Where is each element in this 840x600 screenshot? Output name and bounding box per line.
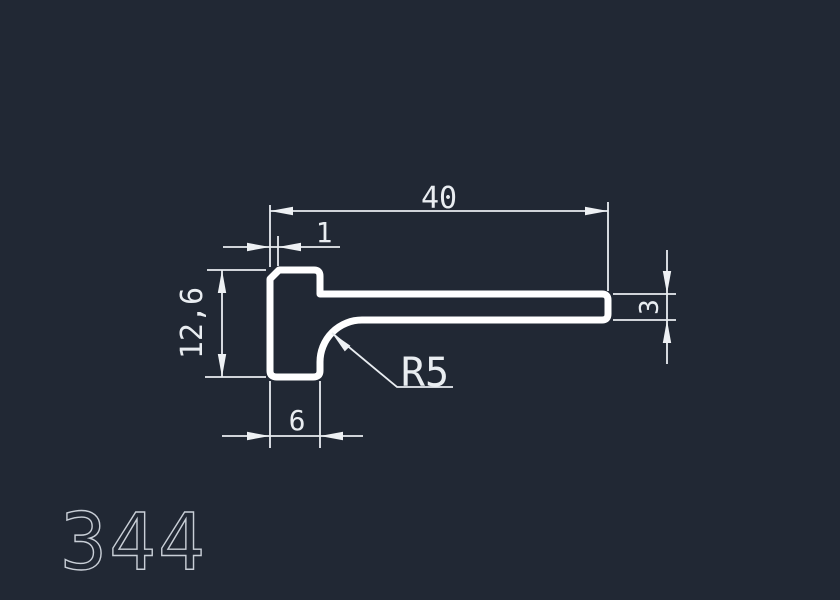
arrowhead-bottom-icon xyxy=(663,320,671,343)
dim-label-fillet-radius: R5 xyxy=(401,350,449,396)
dimension-bottom-width: 6 xyxy=(222,381,363,448)
cad-drawing-canvas: 40 1 12,6 6 xyxy=(0,0,840,600)
profile-technical-drawing: 40 1 12,6 6 xyxy=(0,0,840,600)
arrowhead-right-icon xyxy=(320,432,343,440)
fillet-radius-leader: R5 xyxy=(332,333,453,396)
arrowhead-left-icon xyxy=(247,432,270,440)
arrowhead-bottom-icon xyxy=(218,354,226,377)
dim-label-bottom-width: 6 xyxy=(289,404,306,437)
arrowhead-left-icon xyxy=(270,207,293,215)
arrowhead-top-icon xyxy=(218,270,226,293)
arrowhead-top-icon xyxy=(663,271,671,294)
dim-label-left-height: 12,6 xyxy=(175,287,210,359)
dim-label-top-width: 40 xyxy=(421,181,457,216)
dimension-right-thickness: 3 xyxy=(613,250,676,364)
arrowhead-right-icon xyxy=(278,243,301,251)
part-number-label: 344 xyxy=(60,498,207,588)
dimension-top-offset: 1 xyxy=(223,216,340,266)
dim-label-top-offset: 1 xyxy=(316,216,333,249)
leader-arrowhead-icon xyxy=(332,333,350,351)
arrowhead-left-icon xyxy=(247,243,270,251)
dim-label-right-thickness: 3 xyxy=(635,299,665,315)
dimension-left-height: 12,6 xyxy=(175,270,266,377)
arrowhead-right-icon xyxy=(585,207,608,215)
